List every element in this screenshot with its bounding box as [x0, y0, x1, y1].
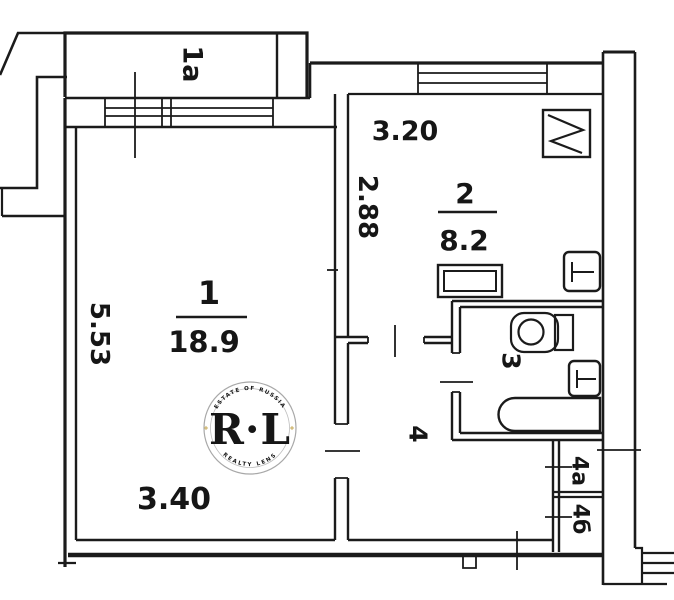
staircase-hatch: [642, 553, 674, 573]
balcony-window: [65, 99, 337, 127]
stove-icon: [438, 265, 502, 297]
room1-height-dim: 5.53: [84, 302, 114, 366]
bathtub-icon: [499, 398, 601, 431]
closet-b-label: 4б: [568, 504, 593, 535]
room1-width-dim: 3.40: [137, 482, 211, 517]
watermark-initials: R·L: [209, 405, 291, 454]
balcony-label: 1а: [177, 45, 208, 82]
hall-label: 4: [404, 425, 433, 442]
kitchen-sink-icon: [543, 110, 590, 157]
kitchen-window: [310, 63, 603, 98]
neighbor-building-outline: [0, 33, 67, 216]
kitchen-height-dim: 2.88: [352, 175, 382, 239]
vent-box-icon: [564, 252, 600, 291]
toilet-icon: [511, 313, 573, 352]
entrance-door: [463, 531, 517, 570]
floor-plan: 1а 1 18.9 5.53 3.40 3.20 2.88 2 8.2 3 4 …: [0, 0, 674, 600]
bathroom-label: 3: [497, 352, 526, 369]
towel-rail-icon: [569, 361, 600, 396]
floor-plan-canvas: 1а 1 18.9 5.53 3.40 3.20 2.88 2 8.2 3 4 …: [0, 0, 674, 600]
room1-number: 1: [198, 274, 220, 312]
partition-room1: [325, 94, 360, 540]
bathroom-walls: [440, 301, 603, 440]
room1-area: 18.9: [168, 325, 240, 359]
kitchen-width-dim: 3.20: [372, 116, 439, 147]
closet-a-label: 4а: [567, 456, 592, 486]
kitchen-bottom-wall: [335, 325, 452, 357]
kitchen-area: 8.2: [439, 224, 489, 257]
watermark: ESTATE OF RUSSIA REALTY LENS R·L: [204, 382, 296, 474]
kitchen-number: 2: [455, 177, 474, 210]
labels: 1а 1 18.9 5.53 3.40 3.20 2.88 2 8.2 3 4 …: [84, 45, 593, 534]
